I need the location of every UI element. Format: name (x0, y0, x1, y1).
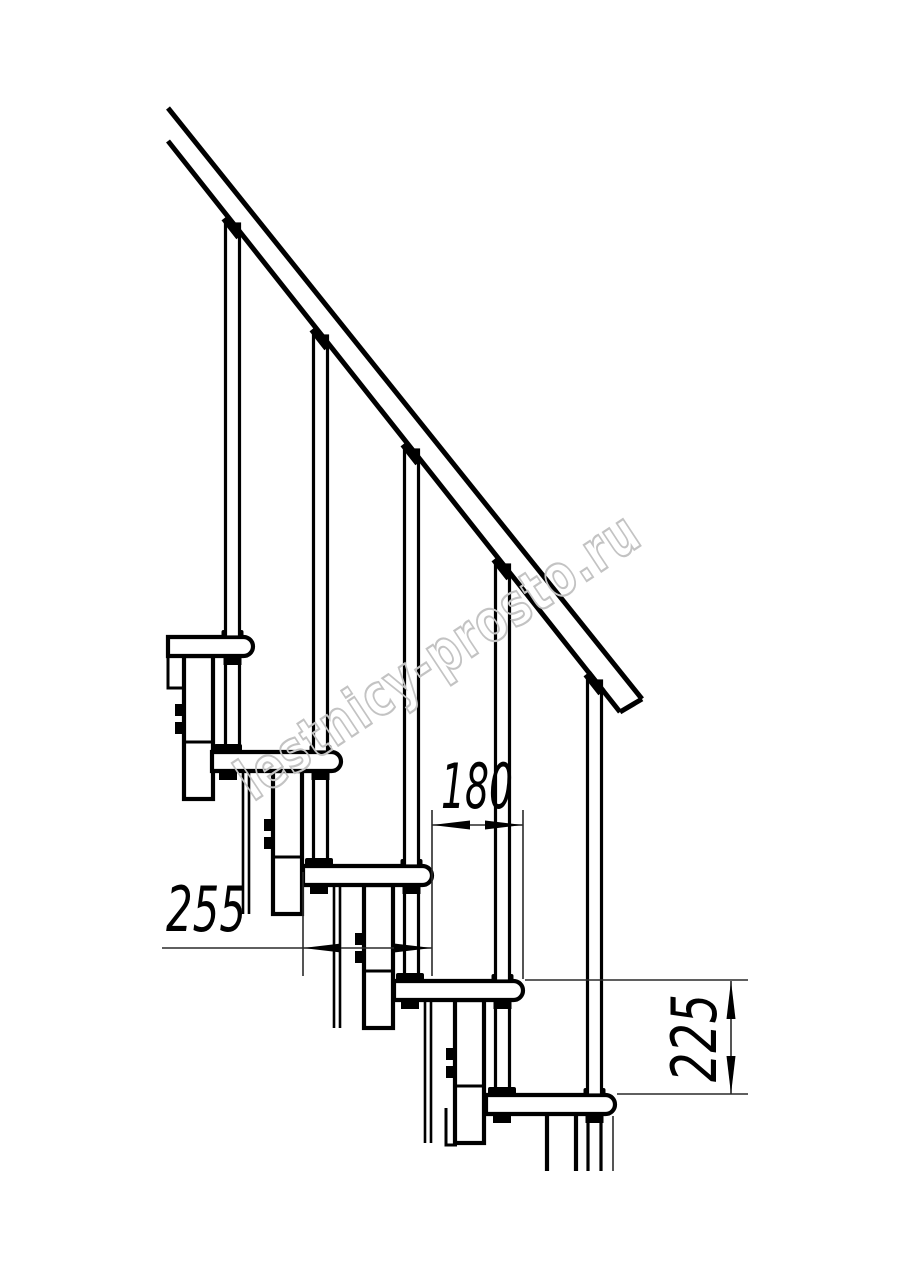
baluster-4-lower-segment (496, 1000, 510, 1096)
baluster-3-lower-segment (405, 885, 419, 982)
tread-4 (394, 981, 523, 1000)
staircase-drawing-canvas: 255 180 225 lestnicy-prosto.ru (0, 0, 914, 1280)
dimension-rise-225: 225 (525, 980, 748, 1094)
handrail-end-cap (620, 699, 642, 712)
baluster-1 (226, 224, 240, 637)
support-box-1 (184, 656, 213, 799)
dim-255-arrow-left (303, 944, 341, 953)
support-box-3 (364, 885, 393, 1028)
staircase-technical-drawing-page: 255 180 225 lestnicy-prosto.ru (0, 0, 914, 1280)
module-1-cut-stub (168, 658, 184, 688)
support-box-4 (455, 1000, 484, 1143)
tread-3 (303, 866, 432, 885)
tread-5 (486, 1095, 615, 1114)
dim-225-label: 225 (658, 994, 731, 1082)
dim-180-label: 180 (441, 750, 513, 823)
tread-1 (168, 637, 253, 656)
dim-255-label: 255 (166, 873, 246, 946)
baluster-1-lower-segment (226, 656, 240, 753)
baluster-2-lower-segment (314, 771, 328, 867)
baluster-5 (588, 681, 602, 1095)
